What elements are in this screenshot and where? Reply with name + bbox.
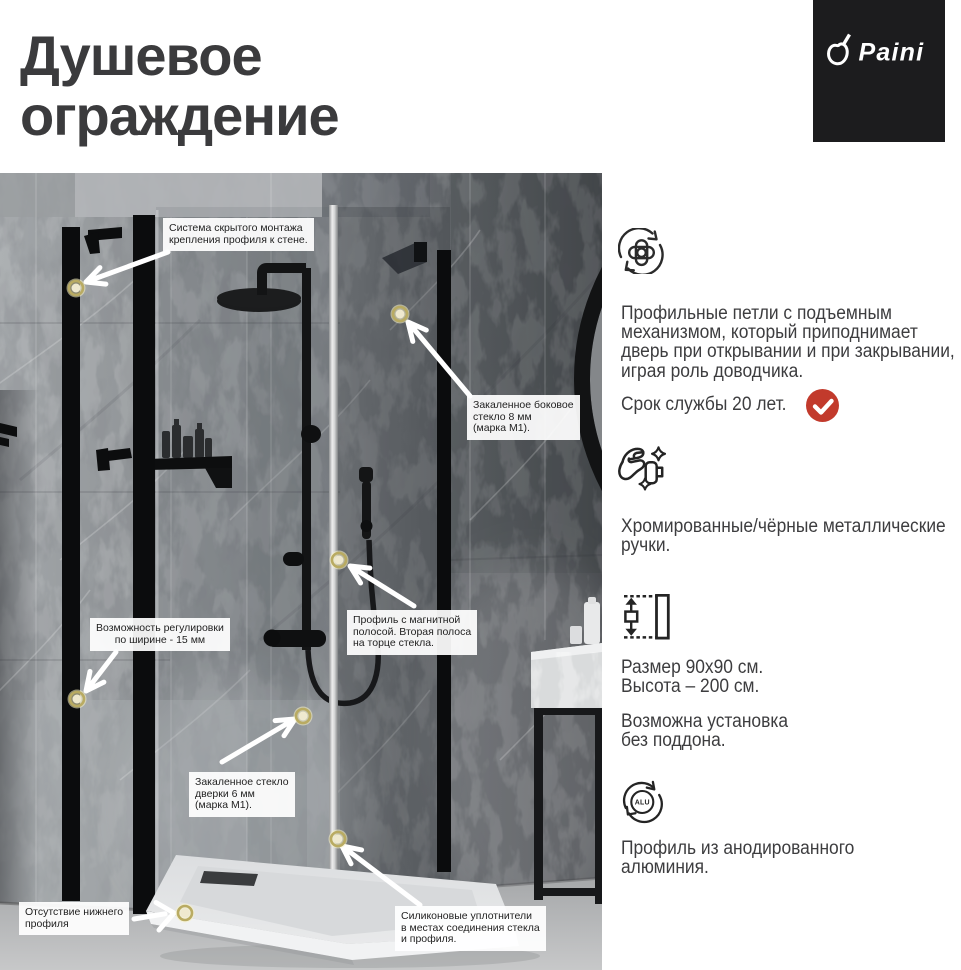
svg-text:ALU: ALU [635, 800, 650, 807]
svg-text:Paini: Paini [859, 39, 925, 67]
